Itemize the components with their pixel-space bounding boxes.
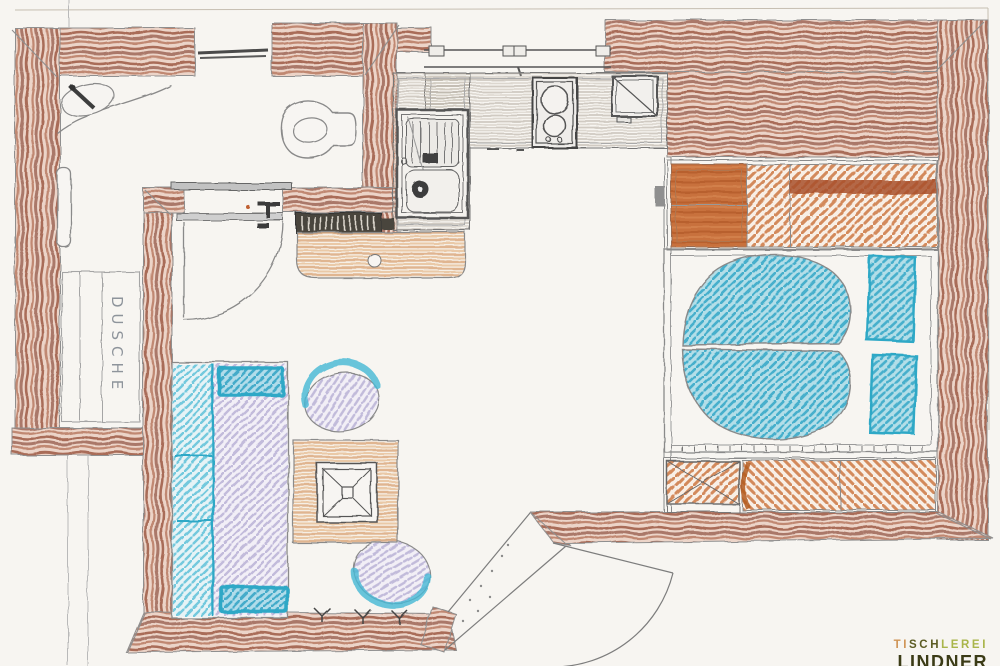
kitchen-sink: [397, 110, 468, 218]
logo-seg-ti: TI: [894, 639, 909, 651]
entrance-door-swing-arc: [553, 573, 673, 666]
armchair: [298, 356, 385, 438]
wardrobe-dark-rail: [790, 180, 937, 194]
wall-north: [605, 20, 988, 72]
wall-bedroom-bottom: [530, 512, 993, 543]
kitchen: [393, 73, 667, 230]
nightstand-cushion: [870, 354, 917, 433]
kitchen-window: [424, 46, 611, 76]
bedroom-sideboard-row: [664, 458, 936, 512]
burner-icon: [542, 87, 569, 114]
logo: TISCHLEREI LINDNER: [894, 640, 988, 666]
bathroom-window: [195, 44, 272, 62]
bathroom-sliding-door: [172, 183, 292, 320]
wall-kitchen-north-left: [397, 28, 432, 52]
burner-icon: [544, 115, 566, 137]
armchair: [346, 532, 437, 613]
bed-foot-rail-ticks: [682, 446, 922, 451]
logo-line1: TISCHLEREI: [894, 640, 988, 652]
shower-label: DUSCHE: [108, 296, 126, 395]
square-table: [317, 463, 377, 522]
wall-shower-bottom: [12, 428, 145, 455]
logo-seg-lerei: LEREI: [941, 639, 988, 651]
heart-shaped-bed: [682, 254, 850, 439]
bedroom: [655, 157, 938, 512]
wardrobe-middle-section: [747, 164, 790, 247]
door-swing-arc: [184, 221, 283, 320]
wall-bedroom-top-thick: [667, 72, 938, 157]
logo-line2: LINDNER: [894, 653, 988, 666]
radiator: [296, 213, 394, 233]
sofa-cushion: [221, 587, 287, 612]
sofa-back: [173, 364, 213, 616]
wardrobe: [667, 160, 937, 250]
wall-cabinet: [57, 168, 71, 247]
floor-plan-page: DUSCHE TISCHLEREI LINDNER: [0, 0, 1000, 666]
sofa: [172, 362, 288, 618]
crossed-box: [667, 461, 739, 512]
living-room: [172, 213, 465, 625]
kitchen-appliance: [612, 76, 657, 122]
counter-knob: [369, 255, 382, 268]
faucet-icon: [423, 153, 438, 163]
wall-right: [938, 20, 988, 540]
vanity-sink: [57, 79, 171, 133]
cooktop: [533, 78, 577, 148]
bench-counter: [297, 232, 465, 278]
bedroom-partition: [655, 157, 671, 512]
wardrobe-right-section: [790, 164, 937, 247]
sofa-seat: [214, 364, 287, 616]
shower: [62, 272, 140, 422]
partition-tab: [655, 186, 665, 206]
logo-seg-sch: SCH: [909, 639, 941, 651]
wall-bath-south: [283, 188, 397, 212]
nightstand-cushions: [864, 256, 920, 434]
sideboard: [742, 460, 936, 510]
door-handle-icon: [258, 202, 280, 206]
wall-living-left: [143, 188, 172, 618]
toilet: [281, 101, 356, 158]
threshold-speckles: [462, 544, 509, 622]
nightstand-cushion: [867, 256, 916, 342]
wall-left: [15, 28, 60, 455]
entrance-door-leaf: [553, 543, 673, 573]
sofa-cushion: [219, 368, 283, 395]
wall-top-bath: [272, 23, 363, 76]
floor-plan-drawing: [0, 0, 1000, 666]
